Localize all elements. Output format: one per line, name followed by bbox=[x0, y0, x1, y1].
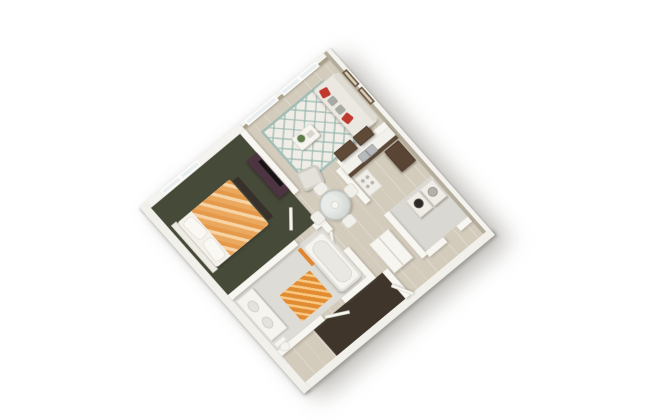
bedroom-door bbox=[289, 207, 293, 230]
floorplan-scene bbox=[0, 0, 650, 420]
apartment-floorplan bbox=[139, 48, 495, 394]
